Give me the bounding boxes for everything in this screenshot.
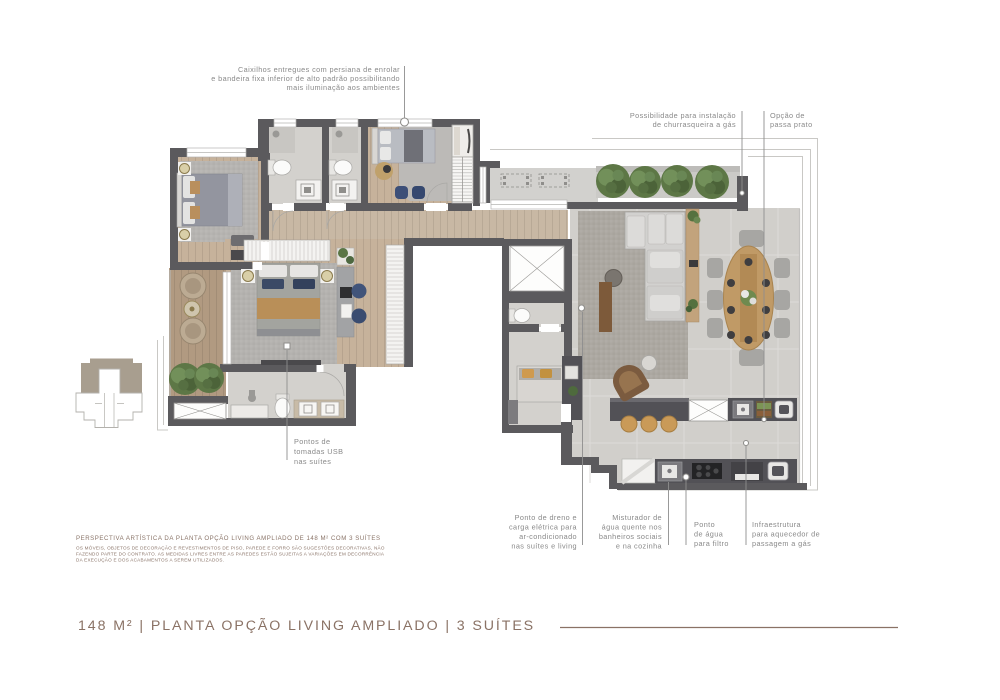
svg-text:nas suítes: nas suítes bbox=[294, 457, 331, 466]
svg-text:de água: de água bbox=[694, 530, 724, 539]
svg-text:carga elétrica para: carga elétrica para bbox=[509, 523, 578, 532]
svg-text:para filtro: para filtro bbox=[694, 539, 729, 548]
svg-text:148 M² | PLANTA OPÇÃO LIVING A: 148 M² | PLANTA OPÇÃO LIVING AMPLIADO | … bbox=[78, 617, 535, 634]
svg-text:tomadas USB: tomadas USB bbox=[294, 447, 343, 456]
svg-text:DA EXECUÇÃO E DOS ACABAMENTOS: DA EXECUÇÃO E DOS ACABAMENTOS A SEREM UT… bbox=[76, 557, 224, 563]
svg-text:Caixilhos entregues com persia: Caixilhos entregues com persiana de enro… bbox=[238, 65, 400, 74]
svg-text:ar-condicionado: ar-condicionado bbox=[519, 532, 577, 541]
svg-text:passagem a gás: passagem a gás bbox=[752, 539, 811, 548]
svg-text:banheiros sociais: banheiros sociais bbox=[599, 532, 662, 541]
svg-text:Possibilidade para instalação: Possibilidade para instalação bbox=[630, 111, 736, 120]
svg-text:Opção de: Opção de bbox=[770, 111, 805, 120]
svg-text:FAZENDO PARTE DO CONTRATO. AS: FAZENDO PARTE DO CONTRATO. AS MEDIDAS LI… bbox=[76, 550, 385, 557]
svg-text:mais iluminação aos ambientes: mais iluminação aos ambientes bbox=[287, 83, 400, 92]
svg-text:Pontos de: Pontos de bbox=[294, 437, 330, 446]
svg-text:PERSPECTIVA ARTÍSTICA DA PLANT: PERSPECTIVA ARTÍSTICA DA PLANTA OPÇÃO LI… bbox=[76, 535, 381, 542]
svg-text:Ponto: Ponto bbox=[694, 520, 715, 529]
svg-text:para aquecedor de: para aquecedor de bbox=[752, 530, 820, 539]
svg-text:passa prato: passa prato bbox=[770, 120, 813, 129]
svg-text:e na cozinha: e na cozinha bbox=[616, 542, 663, 551]
svg-text:água quente nos: água quente nos bbox=[602, 523, 662, 532]
svg-text:OS MÓVEIS, OBJETOS DE DECORAÇÃ: OS MÓVEIS, OBJETOS DE DECORAÇÃO E REVEST… bbox=[76, 545, 385, 551]
svg-text:Misturador de: Misturador de bbox=[612, 513, 662, 522]
svg-text:de churrasqueira a gás: de churrasqueira a gás bbox=[653, 120, 736, 129]
svg-text:Infraestrutura: Infraestrutura bbox=[752, 520, 802, 529]
svg-text:nas suítes e living: nas suítes e living bbox=[511, 542, 577, 551]
svg-text:e bandeira fixa inferior de al: e bandeira fixa inferior de alto padrão … bbox=[211, 74, 400, 83]
svg-text:Ponto de dreno e: Ponto de dreno e bbox=[515, 513, 577, 522]
